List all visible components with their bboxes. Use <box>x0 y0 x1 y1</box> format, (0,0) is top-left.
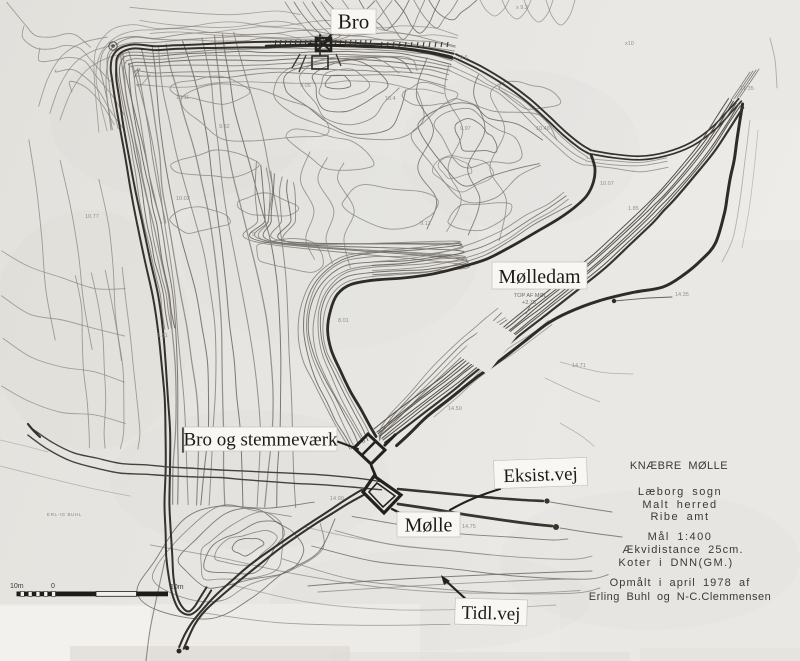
svg-text:Mølledam: Mølledam <box>498 266 581 288</box>
svg-text:Bro: Bro <box>338 10 370 34</box>
svg-text:10m: 10m <box>170 584 184 591</box>
svg-text:14.90: 14.90 <box>330 496 344 502</box>
svg-text:9.81: 9.81 <box>157 333 168 339</box>
svg-text:9.6: 9.6 <box>460 55 468 61</box>
svg-text:9.82: 9.82 <box>219 124 230 130</box>
svg-text:9.05: 9.05 <box>300 83 311 89</box>
svg-text:Bro og stemmeværk: Bro og stemmeværk <box>183 430 338 451</box>
svg-text:14.35: 14.35 <box>675 292 689 298</box>
svg-text:Koter i DNN(GM.): Koter i DNN(GM.) <box>618 557 733 569</box>
svg-text:9.97: 9.97 <box>460 126 471 132</box>
svg-text:x10: x10 <box>625 41 634 47</box>
svg-text:Læborg sogn: Læborg sogn <box>638 486 722 498</box>
svg-text:x 9.3: x 9.3 <box>516 5 528 11</box>
svg-text:Mål 1:400: Mål 1:400 <box>648 531 713 543</box>
svg-text:Erling Buhl og N-C.Clemmensen: Erling Buhl og N-C.Clemmensen <box>589 591 771 603</box>
svg-text:17.35: 17.35 <box>740 86 754 92</box>
svg-text:10.77: 10.77 <box>85 214 99 220</box>
svg-text:Mølle: Mølle <box>405 515 453 537</box>
svg-text:9: 9 <box>252 232 255 238</box>
svg-text:Opmålt i april 1978 af: Opmålt i april 1978 af <box>610 577 751 589</box>
svg-text:Tidl.vej: Tidl.vej <box>461 603 520 626</box>
svg-text:14.50: 14.50 <box>448 406 462 412</box>
svg-text:ERL-IG BUHL: ERL-IG BUHL <box>47 512 82 517</box>
svg-text:10.48: 10.48 <box>536 126 550 132</box>
svg-text:Malt herred: Malt herred <box>642 499 717 511</box>
svg-text:10.02: 10.02 <box>176 196 190 202</box>
svg-text:0: 0 <box>51 583 55 590</box>
svg-text:10.07: 10.07 <box>600 181 614 187</box>
svg-text:1.85: 1.85 <box>628 206 639 212</box>
svg-text:Eksist.vej: Eksist.vej <box>503 464 578 488</box>
svg-text:Ribe amt: Ribe amt <box>650 511 709 523</box>
svg-text:14.75: 14.75 <box>462 524 476 530</box>
svg-text:10.4: 10.4 <box>385 96 396 102</box>
svg-text:TOP AF MØL.: TOP AF MØL. <box>514 293 549 299</box>
svg-text:10.11: 10.11 <box>176 95 189 101</box>
svg-text:10m: 10m <box>10 583 24 590</box>
svg-text:14.71: 14.71 <box>572 363 586 369</box>
svg-text:9.12: 9.12 <box>420 221 431 227</box>
svg-text:Ækvidistance 25cm.: Ækvidistance 25cm. <box>622 544 743 556</box>
svg-text:KNÆBRE MØLLE: KNÆBRE MØLLE <box>630 460 728 472</box>
svg-text:8.01: 8.01 <box>338 318 349 324</box>
svg-text:+2.75: +2.75 <box>522 300 536 306</box>
